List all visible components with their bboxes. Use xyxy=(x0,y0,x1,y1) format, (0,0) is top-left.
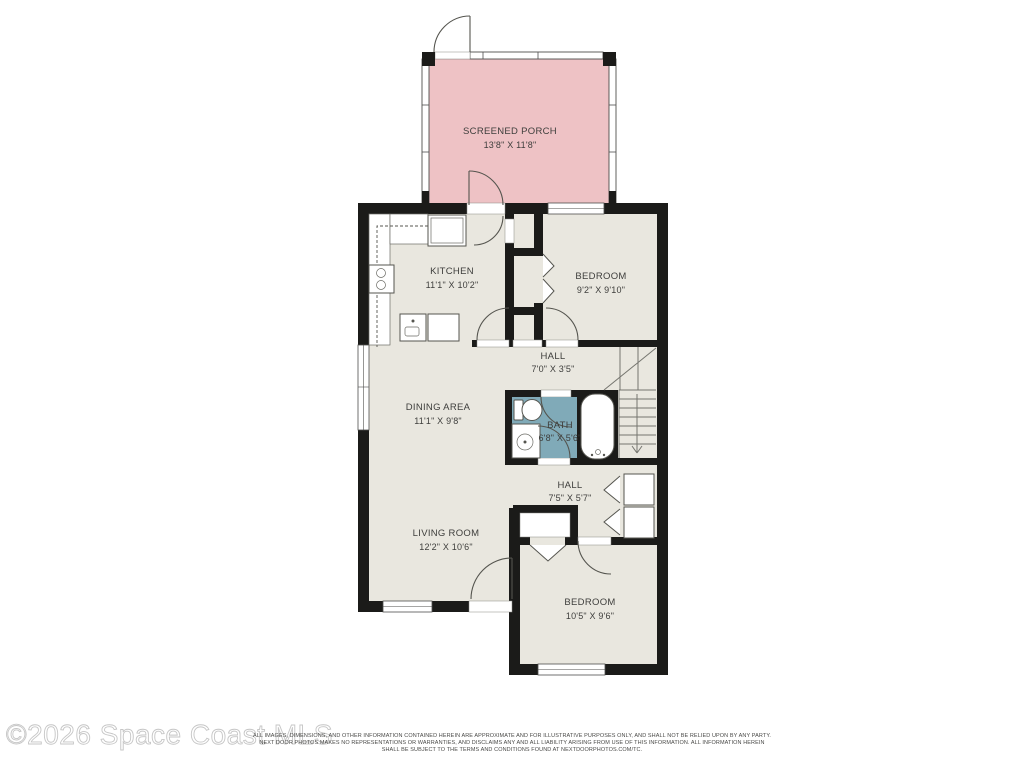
room-label: SCREENED PORCH xyxy=(463,126,557,137)
wall-right xyxy=(657,203,668,675)
porch-post xyxy=(422,191,429,204)
room-label: LIVING ROOM xyxy=(413,528,480,539)
closet-strip-right-wall xyxy=(534,214,543,252)
vanity-sink-icon xyxy=(512,424,540,458)
screened-porch: SCREENED PORCH 13'8" X 11'8" xyxy=(422,16,616,205)
counter-top xyxy=(390,214,428,244)
room-dims: 11'1" X 10'2" xyxy=(426,280,479,290)
closet-divider xyxy=(505,248,543,256)
refrigerator-icon xyxy=(428,215,466,246)
kitchen-island xyxy=(428,314,459,341)
linen-closet-opening xyxy=(513,340,542,347)
room-dims: 13'8" X 11'8" xyxy=(484,140,537,150)
porch-post xyxy=(422,52,435,66)
washer-icon xyxy=(624,474,654,505)
room-label: DINING AREA xyxy=(406,402,471,413)
room-dims: 9'2" X 9'10" xyxy=(577,285,625,295)
porch-door-opening xyxy=(435,52,470,59)
disclaimer-line-1: ALL IMAGES, DIMENSIONS, AND OTHER INFORM… xyxy=(253,733,771,739)
room-label: KITCHEN xyxy=(430,266,474,277)
porch-screen-wall-right xyxy=(609,59,616,203)
bathtub-icon xyxy=(577,390,618,465)
disclaimer-line-2: NEXT DOOR PHOTOS MAKES NO REPRESENTATION… xyxy=(259,740,764,746)
room-label: BEDROOM xyxy=(564,597,615,608)
room-label: BATH xyxy=(547,420,573,431)
floor-plan-canvas: SCREENED PORCH 13'8" X 11'8" xyxy=(0,0,1024,768)
stove-icon xyxy=(369,265,394,293)
room-dims: 11'1" X 9'8" xyxy=(414,416,462,426)
closet2-top-wall xyxy=(513,505,578,513)
porch-screen-wall-left xyxy=(422,59,429,203)
front-door-opening xyxy=(469,601,512,612)
room-dims: 7'5" X 5'7" xyxy=(548,493,591,503)
room-label: HALL xyxy=(558,480,583,491)
bath-left-wall xyxy=(505,390,512,465)
bedroom2-top-wall xyxy=(565,537,578,545)
bedroom1-door-opening xyxy=(546,340,578,347)
bath-door-opening-top xyxy=(541,390,571,397)
porch-post xyxy=(609,191,616,204)
closet-divider xyxy=(505,307,543,315)
room-dims: 10'5" X 9'6" xyxy=(566,611,614,621)
porch-screen-wall-top xyxy=(470,52,603,59)
floor-plan-page: SCREENED PORCH 13'8" X 11'8" xyxy=(0,0,1024,768)
bedroom2-top-wall xyxy=(509,537,530,545)
bath: BATH 6'8" X 5'6" xyxy=(512,390,618,465)
porch-house-door-opening xyxy=(467,203,505,214)
wall-top xyxy=(358,203,668,214)
room-dims: 6'8" X 5'6" xyxy=(538,433,581,443)
room-label: BEDROOM xyxy=(575,271,626,282)
room-dims: 12'2" X 10'6" xyxy=(419,542,472,552)
pantry-opening xyxy=(505,219,514,243)
dryer-icon xyxy=(624,507,654,538)
window-bedroom1 xyxy=(548,203,604,214)
bath-door-opening-bottom xyxy=(538,458,570,465)
window-living xyxy=(383,601,432,612)
wall-left-bedroom2 xyxy=(509,508,520,675)
room-dims: 7'0" X 3'5" xyxy=(531,364,574,374)
bedroom2-door-opening xyxy=(578,537,611,545)
bedroom2-closet xyxy=(520,513,570,537)
kitchen-door-opening xyxy=(477,340,509,347)
porch-screen-door xyxy=(434,16,470,52)
porch-post xyxy=(603,52,616,66)
window-dining xyxy=(358,345,369,430)
toilet-icon xyxy=(514,400,542,421)
window-bedroom2 xyxy=(538,664,605,675)
kitchen-sink-icon xyxy=(400,314,426,341)
footer: ©2026 Space Coast MLS ALL IMAGES, DIMENS… xyxy=(6,719,771,753)
room-label: HALL xyxy=(541,351,566,362)
disclaimer-line-3: SHALL BE SUBJECT TO THE TERMS AND CONDIT… xyxy=(382,747,643,753)
